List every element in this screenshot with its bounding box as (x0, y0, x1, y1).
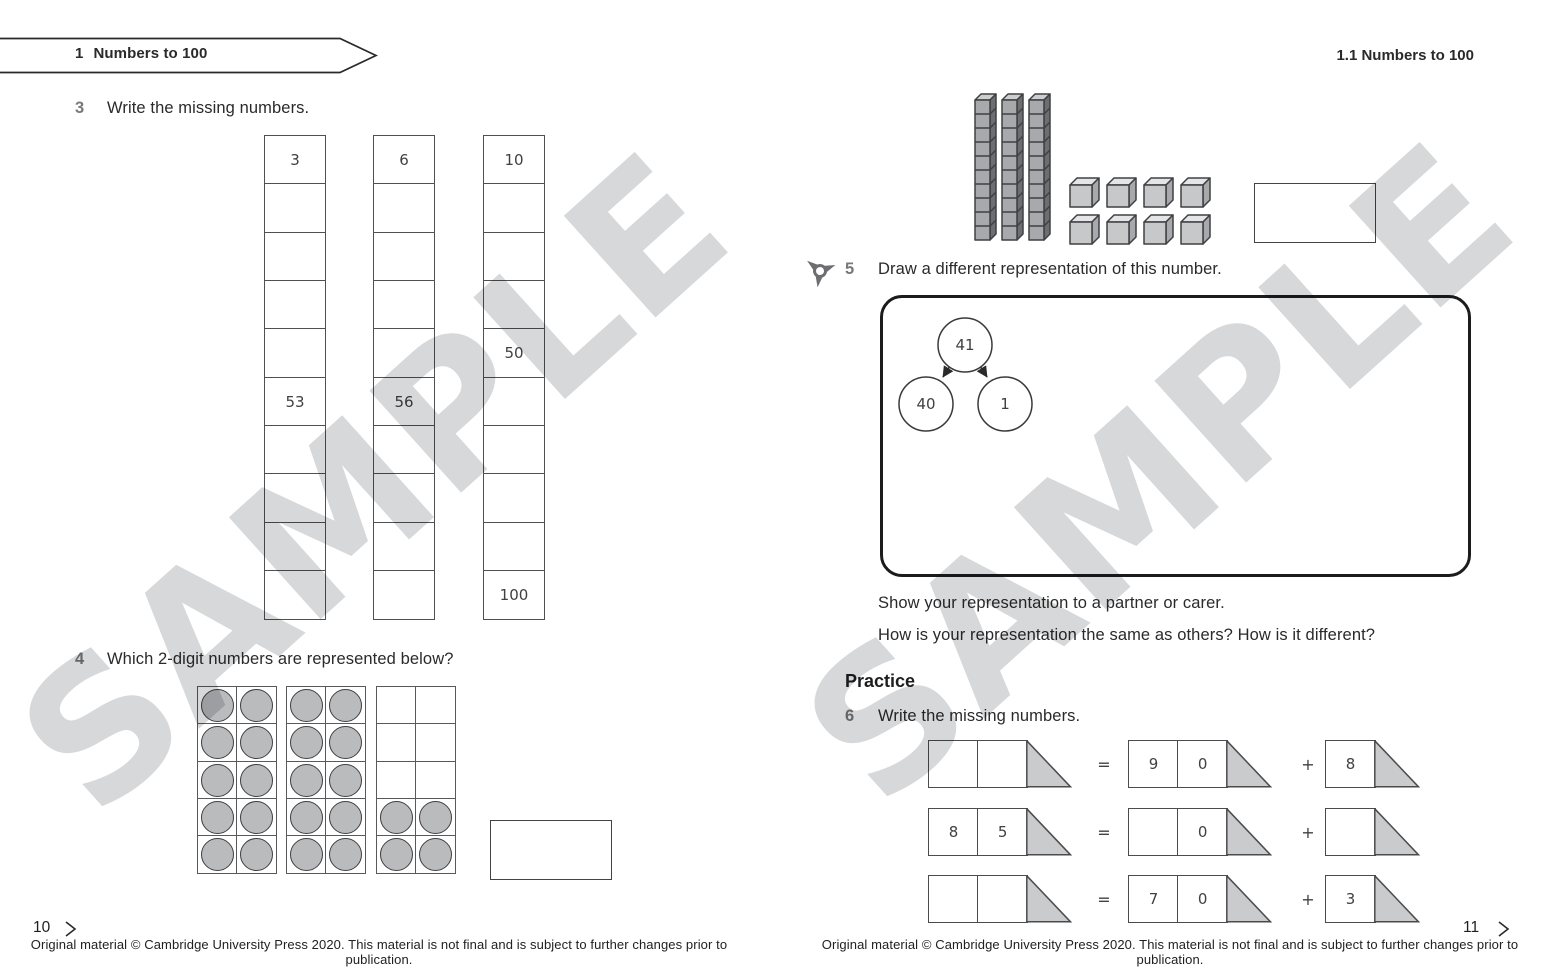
counter (201, 764, 234, 797)
book-spread: 1Numbers to 100 3 Write the missing numb… (0, 0, 1549, 977)
number-cell-empty (483, 425, 545, 475)
counter (240, 726, 273, 759)
card-cell (928, 740, 979, 788)
number-cell-empty (483, 473, 545, 523)
base-ten-blocks (965, 90, 1235, 252)
place-value-card (928, 875, 1072, 923)
number-cell-empty (373, 328, 435, 378)
number-cell-empty (373, 570, 435, 620)
place-value-card (928, 740, 1072, 788)
counter (329, 726, 362, 759)
page-chevron-left-icon (64, 920, 78, 938)
ten-frame (376, 686, 456, 874)
number-cell-empty (483, 232, 545, 282)
number-cell-filled: 10 (483, 135, 545, 185)
number-cell-empty (373, 183, 435, 233)
question-5-number: 5 (845, 260, 854, 279)
section-header: 1.1 Numbers to 100 (1154, 47, 1474, 64)
number-cell-filled: 6 (373, 135, 435, 185)
challenge-star-icon (801, 253, 839, 289)
number-cell-filled: 53 (264, 377, 326, 427)
card-arrow-tab (1226, 740, 1272, 788)
number-cell-empty (483, 522, 545, 572)
counter (240, 764, 273, 797)
question-6-number: 6 (845, 707, 854, 726)
number-cell-empty (264, 280, 326, 330)
counter (290, 838, 323, 871)
tens-rod (1029, 94, 1050, 240)
number-cell-filled: 100 (483, 570, 545, 620)
frame-cell (325, 798, 366, 837)
question-4-text: Which 2-digit numbers are represented be… (107, 650, 454, 669)
place-value-card (1325, 808, 1420, 856)
frame-cell (286, 686, 327, 725)
footer-left: Original material © Cambridge University… (0, 937, 758, 967)
counter (290, 764, 323, 797)
number-column: 1050100 (483, 135, 545, 620)
frame-cell (236, 723, 277, 762)
chapter-title-label: Numbers to 100 (93, 45, 207, 62)
place-value-card: 9 0 (1128, 740, 1272, 788)
frame-cell (325, 835, 366, 874)
card-cell: 0 (1177, 740, 1228, 788)
card-cell (1128, 808, 1179, 856)
answer-box-blocks (1254, 183, 1376, 243)
number-cell-empty (483, 377, 545, 427)
frame-cell (197, 798, 238, 837)
card-cell: 7 (1128, 875, 1179, 923)
number-cell-empty (264, 522, 326, 572)
counter (329, 689, 362, 722)
ones-cube (1144, 178, 1173, 207)
page-number-right: 11 (1463, 919, 1479, 937)
number-cell-empty (373, 280, 435, 330)
frame-cell (376, 686, 417, 725)
compare-representation-line: How is your representation the same as o… (878, 626, 1375, 645)
frame-cell (325, 686, 366, 725)
card-cell: 8 (1325, 740, 1376, 788)
card-cell: 3 (1325, 875, 1376, 923)
tens-rod (1002, 94, 1023, 240)
frame-cell (236, 686, 277, 725)
card-cell (977, 875, 1028, 923)
question-4-number: 4 (75, 650, 84, 669)
frame-cell (325, 723, 366, 762)
card-arrow-tab (1374, 875, 1420, 923)
number-cell-filled: 56 (373, 377, 435, 427)
number-cell-empty (264, 232, 326, 282)
number-cell-empty (264, 183, 326, 233)
place-value-card: 8 (1325, 740, 1420, 788)
frame-cell (376, 835, 417, 874)
ten-frame (286, 686, 366, 874)
equals-sign: = (1092, 808, 1116, 856)
question-5-text: Draw a different representation of this … (878, 260, 1222, 279)
frame-cell (236, 835, 277, 874)
frame-cell (197, 761, 238, 800)
number-cell-empty (483, 280, 545, 330)
number-cell-empty (373, 522, 435, 572)
place-value-card: 7 0 (1128, 875, 1272, 923)
equation-row: 8 5 = 0 + (928, 808, 1428, 856)
part-whole-model: 41 40 1 (880, 295, 1080, 465)
frame-cell (415, 798, 456, 837)
chapter-title: 1Numbers to 100 (75, 45, 207, 62)
frame-cell (376, 723, 417, 762)
place-value-card: 3 (1325, 875, 1420, 923)
counter (419, 838, 452, 871)
counter (201, 689, 234, 722)
place-value-card: 0 (1128, 808, 1272, 856)
counter (201, 801, 234, 834)
card-arrow-tab (1374, 808, 1420, 856)
plus-sign: + (1296, 875, 1320, 923)
card-arrow-tab (1374, 740, 1420, 788)
equation-row: = 7 0 + 3 (928, 875, 1428, 923)
question-6-text: Write the missing numbers. (878, 707, 1080, 726)
counter (329, 764, 362, 797)
number-cell-empty (373, 425, 435, 475)
part-right-value: 1 (1000, 395, 1010, 413)
number-cell-filled: 3 (264, 135, 326, 185)
number-cell-empty (483, 183, 545, 233)
equals-sign: = (1092, 740, 1116, 788)
ones-cube (1070, 215, 1099, 244)
frame-cell (197, 835, 238, 874)
practice-heading: Practice (845, 671, 915, 692)
frame-cell (236, 798, 277, 837)
card-cell: 8 (928, 808, 979, 856)
counter (201, 726, 234, 759)
question-3-text: Write the missing numbers. (107, 99, 309, 118)
counter (329, 838, 362, 871)
counter (290, 801, 323, 834)
counter (290, 726, 323, 759)
place-value-card: 8 5 (928, 808, 1072, 856)
frame-cell (286, 723, 327, 762)
answer-box-q4 (490, 820, 612, 880)
number-cell-empty (264, 328, 326, 378)
counter (419, 801, 452, 834)
equation-row: = 9 0 + 8 (928, 740, 1428, 788)
card-cell: 0 (1177, 875, 1228, 923)
number-cell-empty (373, 473, 435, 523)
ones-cube (1181, 178, 1210, 207)
number-cell-filled: 50 (483, 328, 545, 378)
card-arrow-tab (1226, 808, 1272, 856)
number-cell-empty (373, 232, 435, 282)
card-cell: 0 (1177, 808, 1228, 856)
show-representation-line: Show your representation to a partner or… (878, 594, 1225, 613)
counter (240, 838, 273, 871)
card-cell (1325, 808, 1376, 856)
frame-cell (325, 761, 366, 800)
card-cell (928, 875, 979, 923)
number-column: 656 (373, 135, 435, 620)
page-number-left: 10 (33, 919, 50, 937)
number-column: 353 (264, 135, 326, 620)
counter (329, 801, 362, 834)
equals-sign: = (1092, 875, 1116, 923)
counter (290, 689, 323, 722)
tens-rod (975, 94, 996, 240)
counter (380, 838, 413, 871)
plus-sign: + (1296, 808, 1320, 856)
ones-cube (1070, 178, 1099, 207)
number-cell-empty (264, 425, 326, 475)
frame-cell (197, 723, 238, 762)
card-arrow-tab (1026, 875, 1072, 923)
ten-frame (197, 686, 277, 874)
card-arrow-tab (1226, 875, 1272, 923)
frame-cell (286, 761, 327, 800)
frame-cell (376, 798, 417, 837)
card-cell: 5 (977, 808, 1028, 856)
ones-cube (1181, 215, 1210, 244)
plus-sign: + (1296, 740, 1320, 788)
counter (380, 801, 413, 834)
card-cell: 9 (1128, 740, 1179, 788)
frame-cell (415, 835, 456, 874)
ones-cube (1107, 178, 1136, 207)
frame-cell (236, 761, 277, 800)
card-cell (977, 740, 1028, 788)
frame-cell (415, 723, 456, 762)
card-arrow-tab (1026, 740, 1072, 788)
counter (201, 838, 234, 871)
footer-right: Original material © Cambridge University… (791, 937, 1549, 967)
card-arrow-tab (1026, 808, 1072, 856)
frame-cell (376, 761, 417, 800)
number-cell-empty (264, 570, 326, 620)
frame-cell (197, 686, 238, 725)
whole-value: 41 (955, 336, 974, 354)
counter (240, 689, 273, 722)
frame-cell (286, 835, 327, 874)
counter (240, 801, 273, 834)
frame-cell (415, 761, 456, 800)
chapter-number: 1 (75, 45, 83, 62)
part-left-value: 40 (916, 395, 935, 413)
ones-cube (1107, 215, 1136, 244)
number-cell-empty (264, 473, 326, 523)
ones-cube (1144, 215, 1173, 244)
page-chevron-right-icon (1497, 920, 1511, 938)
frame-cell (415, 686, 456, 725)
question-3-number: 3 (75, 99, 84, 118)
frame-cell (286, 798, 327, 837)
